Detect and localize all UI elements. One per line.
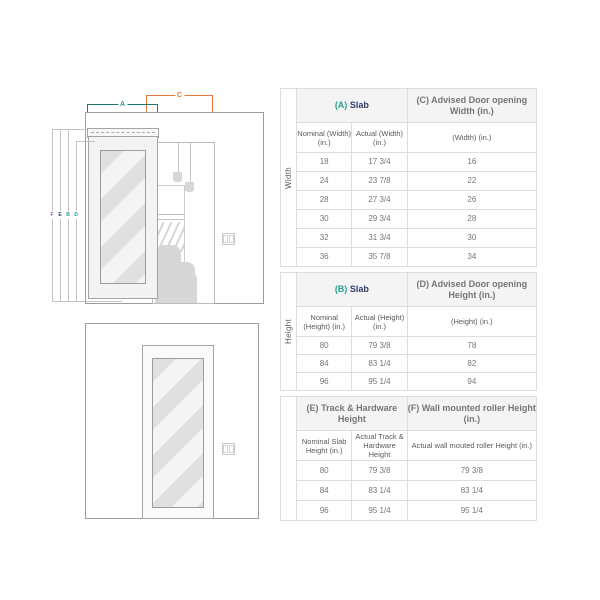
cell: 28: [297, 191, 352, 210]
width-header-slab: (A) Slab: [297, 89, 408, 123]
width-table: Width (A) Slab (C) Advised Door opening …: [280, 88, 537, 267]
cell: 16: [407, 153, 536, 172]
track-table-side-label: [280, 396, 296, 521]
dimension-top-tick-d: [76, 141, 95, 142]
table-row: 3635 7/834: [297, 248, 537, 267]
cell: 30: [407, 229, 536, 248]
cell: 83 1/4: [352, 481, 407, 501]
cell: 80: [297, 337, 352, 355]
cell: 17 3/4: [352, 153, 407, 172]
cell: 24: [297, 172, 352, 191]
table-row: 8079 3/878: [297, 337, 537, 355]
closed-door-diagram: [0, 320, 280, 530]
cell: 35 7/8: [352, 248, 407, 267]
light-switch-icon: [222, 233, 235, 245]
doorway-opening: [152, 142, 215, 304]
cell: 84: [297, 481, 352, 501]
cell: 27 3/4: [352, 191, 407, 210]
light-switch-icon: [222, 443, 235, 455]
cell: 79 3/8: [352, 461, 407, 481]
table-row: 2423 7/822: [297, 172, 537, 191]
cell: 78: [407, 337, 536, 355]
col-header: Actual wall mouted roller Height (in.): [407, 431, 536, 461]
height-header-slab: (B) Slab: [297, 273, 408, 307]
height-table-side-label: Height: [280, 272, 296, 391]
sofa-seat-icon: [155, 274, 197, 303]
pendant-cord-icon: [190, 143, 191, 182]
track-header-right: (F) Wall mounted roller Height (in.): [407, 397, 536, 431]
col-header: Actual (Width) (in.): [352, 123, 407, 153]
cell: 18: [297, 153, 352, 172]
cell: 83 1/4: [407, 481, 536, 501]
table-row: 8483 1/482: [297, 355, 537, 373]
cell: 34: [407, 248, 536, 267]
track-dashed-line: [91, 132, 155, 133]
pendant-lamp-icon: [173, 172, 182, 182]
col-header: Nominal (Width) (in.): [297, 123, 352, 153]
installed-door-diagram: C A: [0, 0, 280, 340]
cell: 95 1/4: [352, 373, 407, 391]
table-row: 9695 1/495 1/4: [297, 501, 537, 521]
height-table: Height (B) Slab (D) Advised Door opening…: [280, 272, 537, 391]
cell: 80: [297, 461, 352, 481]
cell: 95 1/4: [407, 501, 536, 521]
table-row: 3231 3/430: [297, 229, 537, 248]
track-header-left: (E) Track & Hardware Height: [297, 397, 408, 431]
dimension-label-d: D: [72, 211, 80, 219]
dimension-label-f: F: [48, 211, 56, 219]
cell: 79 3/8: [407, 461, 536, 481]
col-header: Nominal (Height) (in.): [297, 307, 352, 337]
dimension-label-a: A: [118, 101, 127, 109]
cell: 32: [297, 229, 352, 248]
dimension-label-e: E: [56, 211, 64, 219]
col-header: Nominal Slab Height (in.): [297, 431, 352, 461]
door-glass-panel: [100, 150, 146, 284]
door-slab: [142, 345, 214, 519]
cell: 79 3/8: [352, 337, 407, 355]
cell: 82: [407, 355, 536, 373]
cell: 31 3/4: [352, 229, 407, 248]
pendant-lamp-icon: [185, 182, 194, 192]
table-row: 1817 3/416: [297, 153, 537, 172]
cell: 95 1/4: [352, 501, 407, 521]
dimension-line-d: [76, 141, 77, 301]
dimension-label-c: C: [175, 92, 184, 100]
col-header: (Height) (in.): [407, 307, 536, 337]
dimension-label-b: B: [64, 211, 72, 219]
door-slab: [88, 136, 158, 299]
table-row: 8483 1/483 1/4: [297, 481, 537, 501]
table-row: 8079 3/879 3/8: [297, 461, 537, 481]
cell: 30: [297, 210, 352, 229]
dimension-baseline: [52, 301, 122, 302]
cell: 94: [407, 373, 536, 391]
cell: 22: [407, 172, 536, 191]
width-table-side-label: Width: [280, 88, 296, 267]
track-hardware-table: (E) Track & Hardware Height (F) Wall mou…: [280, 396, 537, 521]
height-header-opening: (D) Advised Door opening Height (in.): [407, 273, 536, 307]
cell: 84: [297, 355, 352, 373]
table-row: 3029 3/428: [297, 210, 537, 229]
cell: 23 7/8: [352, 172, 407, 191]
dimension-top-tick: [52, 129, 87, 130]
cell: 29 3/4: [352, 210, 407, 229]
col-header: (Width) (in.): [407, 123, 536, 153]
cell: 96: [297, 501, 352, 521]
pendant-cord-icon: [178, 143, 179, 172]
cell: 36: [297, 248, 352, 267]
cell: 83 1/4: [352, 355, 407, 373]
table-row: 9695 1/494: [297, 373, 537, 391]
col-header: Actual Track & Hardware Height: [352, 431, 407, 461]
door-glass-panel: [152, 358, 204, 508]
spec-sheet: C A: [0, 0, 600, 600]
cell: 26: [407, 191, 536, 210]
cell: 96: [297, 373, 352, 391]
table-row: 2827 3/426: [297, 191, 537, 210]
cell: 28: [407, 210, 536, 229]
width-header-opening: (C) Advised Door opening Width (in.): [407, 89, 536, 123]
col-header: Actual (Height) (in.): [352, 307, 407, 337]
